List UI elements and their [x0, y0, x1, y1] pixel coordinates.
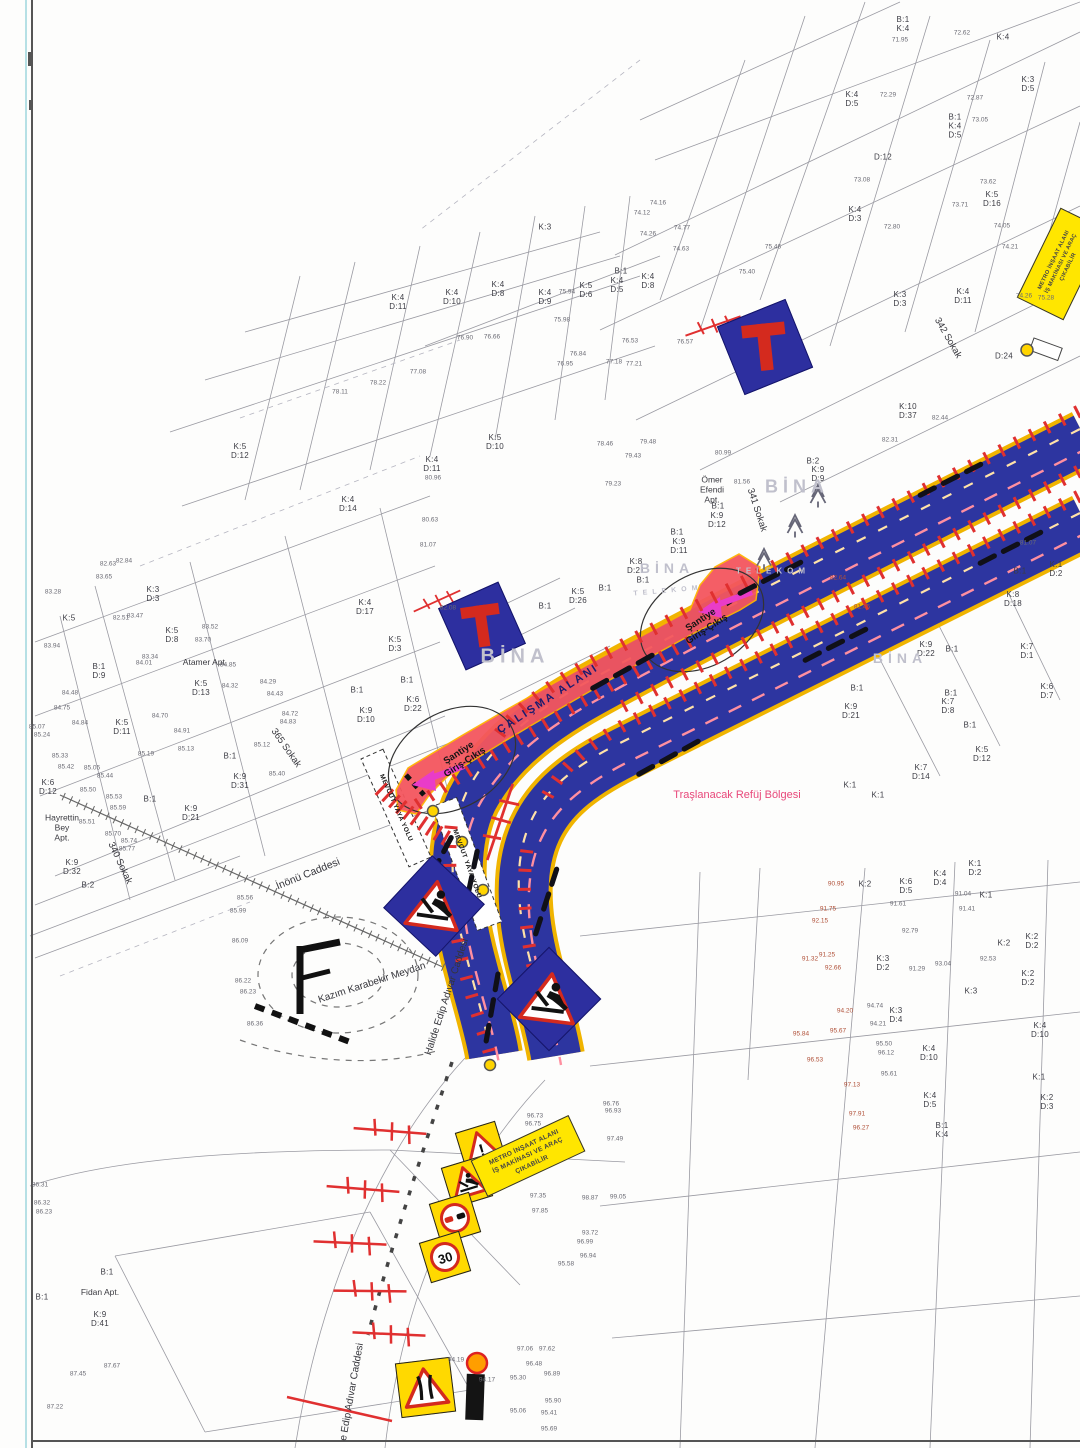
elevation-label: 91.04 [955, 891, 971, 898]
elevation-label: 73.71 [952, 202, 968, 209]
elevation-label: 73.08 [854, 177, 870, 184]
elevation-label: 97.85 [532, 1208, 548, 1215]
apt-hayrettin-bey: Hayrettin Bey Apt. [45, 813, 79, 844]
parcel-label: K:7 D:8 [941, 698, 954, 716]
elevation-label: 83.28 [45, 589, 61, 596]
parcel-label: K:2 D:3 [1040, 1094, 1053, 1112]
apt-omer-efendi: Ömer Efendi Apt. [700, 475, 724, 506]
elevation-label: 87.22 [47, 1404, 63, 1411]
watermark-bina-2: BİNA [765, 477, 829, 498]
elevation-label: 96.73 [527, 1113, 543, 1120]
elevation-label: 94.74 [867, 1003, 883, 1010]
parcel-label: K:3 D:3 [146, 586, 159, 604]
parcel-label: B:1 K:4 D:5 [948, 114, 961, 141]
elevation-label: 85.74 [121, 838, 137, 845]
parcel-label: B:1 [36, 1294, 49, 1303]
elevation-label: 94.17 [479, 1377, 495, 1384]
elevation-label: 76.57 [677, 339, 693, 346]
parcel-label: K:10 D:37 [899, 403, 917, 421]
parcel-label: K:5 D:6 [579, 282, 592, 300]
elevation-label: 96.12 [878, 1050, 894, 1057]
elevation-label: 78.22 [370, 380, 386, 387]
parcel-label: K:3 D:2 [876, 955, 889, 973]
elevation-label: 72.62 [954, 30, 970, 37]
parcel-label: K:3 [965, 988, 978, 997]
elevation-label: 91.25 [819, 952, 835, 959]
elevation-label: 96.93 [605, 1108, 621, 1115]
apt-fidan: Fidan Apt. [81, 1287, 119, 1297]
parcel-label: K:4 [997, 34, 1010, 43]
parcel-label: B:1 K:4 [936, 1122, 949, 1140]
elevation-label: 84.48 [62, 690, 78, 697]
parcel-label: K:2 [998, 940, 1011, 949]
elevation-label: 84.91 [174, 728, 190, 735]
parcel-label: B:1 [224, 753, 237, 762]
elevation-label: 95.30 [510, 1375, 526, 1382]
elevation-label: 76.66 [484, 334, 500, 341]
watermark-bina-1: BİNA [481, 646, 550, 669]
elevation-label: 94.21 [870, 1021, 886, 1028]
elevation-label: 85.42 [58, 764, 74, 771]
elevation-label: 92.15 [812, 918, 828, 925]
traffic-plan-map: ! 30 METRO İNŞAAT ALANI İŞ MAKİNASI VE [0, 0, 1080, 1448]
elevation-label: 98.87 [582, 1195, 598, 1202]
elevation-label: 71.95 [892, 37, 908, 44]
elevation-label: 86.23 [240, 989, 256, 996]
elevation-label: 84.72 [282, 711, 298, 718]
elevation-label: 77.08 [410, 369, 426, 376]
elevation-label: 85.07 [29, 724, 45, 731]
elevation-label: 93.04 [935, 961, 951, 968]
elevation-label: 78.46 [597, 441, 613, 448]
parcel-label: K:4 D:11 [389, 294, 407, 312]
street-halide-edip-adivar-2: e Edip Adıvar Caddesi [338, 1342, 366, 1441]
elevation-label: 80.96 [425, 475, 441, 482]
elevation-label: 85.24 [34, 732, 50, 739]
parcel-label: K:2 D:2 [1025, 933, 1038, 951]
elevation-label: 85.33 [52, 753, 68, 760]
elevation-label: 91.32 [802, 956, 818, 963]
elevation-label: 91.29 [909, 966, 925, 973]
elevation-label: 95.84 [793, 1031, 809, 1038]
elevation-label: 84.70 [152, 713, 168, 720]
parcel-label: K:2 [859, 881, 872, 890]
elevation-label: 84.43 [267, 691, 283, 698]
watermark-telekom-2: TELEKOM [633, 584, 703, 597]
label-site-access-east: Şantiye Giriş-Çıkış [678, 603, 730, 648]
parcel-label: K:3 D:4 [889, 1007, 902, 1025]
elevation-label: 77.21 [626, 361, 642, 368]
elevation-label: 72.87 [967, 95, 983, 102]
parcel-label: K:4 D:4 [933, 870, 946, 888]
parcel-label: K:3 D:5 [1021, 76, 1034, 94]
elevation-label: 85.13 [178, 746, 194, 753]
parcel-label: B:2 [82, 882, 95, 891]
elevation-label: 83.94 [44, 643, 60, 650]
elevation-label: 81.07 [1020, 540, 1036, 547]
elevation-label: 97.49 [607, 1136, 623, 1143]
elevation-label: 85.40 [269, 771, 285, 778]
elevation-label: 75.40 [739, 269, 755, 276]
elevation-label: 96.27 [853, 1125, 869, 1132]
parcel-label: K:9 D:11 [670, 538, 688, 556]
label-ped-path-2: MEVCUT YAYA YOLU [451, 829, 483, 900]
elevation-label: 84.32 [222, 683, 238, 690]
elevation-label: 81.07 [420, 542, 436, 549]
parcel-label: K:4 D:8 [641, 273, 654, 291]
parcel-label: K:1 D:2 [968, 860, 981, 878]
elevation-label: 97.91 [849, 1111, 865, 1118]
watermark-telekom-1: TELEKOM [736, 567, 810, 576]
elevation-label: 95.69 [541, 1426, 557, 1433]
watermark-bina-3: BİNA [640, 560, 694, 576]
elevation-label: 92.66 [825, 965, 841, 972]
elevation-label: 79.48 [640, 439, 656, 446]
parcel-label: K:5 D:12 [973, 746, 991, 764]
elevation-label: 74.05 [994, 223, 1010, 230]
parcel-label: K:4 D:11 [423, 456, 441, 474]
elevation-label: 72.80 [884, 224, 900, 231]
elevation-label: 86.09 [232, 938, 248, 945]
elevation-label: 96.89 [544, 1371, 560, 1378]
street-halide-edip-adivar-1: Halide Edip Adıvar Caddesi [423, 937, 471, 1056]
elevation-label: 86.31 [32, 1182, 48, 1189]
parcel-label: K:9 D:21 [842, 703, 860, 721]
parcel-label: K:4 D:3 [848, 206, 861, 224]
elevation-label: 95.61 [881, 1071, 897, 1078]
elevation-label: 92.53 [980, 956, 996, 963]
parcel-label: K:4 D:17 [356, 599, 374, 617]
parcel-label: K:4 D:10 [1031, 1022, 1049, 1040]
parcel-label: K:5 D:12 [231, 443, 249, 461]
elevation-label: 83.65 [96, 574, 112, 581]
elevation-label: 79.23 [605, 481, 621, 488]
parcel-label: K:3 [539, 224, 552, 233]
elevation-label: 82.31 [882, 437, 898, 444]
street-inonu-caddesi: İnönü Caddesi [274, 856, 341, 892]
parcel-label: K:8 D:18 [1004, 591, 1022, 609]
elevation-label: 96.99 [577, 1239, 593, 1246]
elevation-label: 85.44 [97, 773, 113, 780]
parcel-label: K:9 D:12 [708, 512, 726, 530]
parcel-label: B:1 [851, 685, 864, 694]
elevation-label: 95.58 [558, 1261, 574, 1268]
elevation-label: 75.98 [554, 317, 570, 324]
elevation-label: 85.70 [105, 831, 121, 838]
elevation-label: 87.45 [70, 1371, 86, 1378]
elevation-label: 75.28 [1038, 295, 1054, 302]
parcel-label: K:5 D:26 [569, 588, 587, 606]
elevation-label: 73.62 [980, 179, 996, 186]
elevation-label: 97.62 [539, 1346, 555, 1353]
parcel-label: B:1 [964, 722, 977, 731]
elevation-label: 91.41 [959, 906, 975, 913]
elevation-label: 84.29 [260, 679, 276, 686]
elevation-label: 81.45 [854, 604, 870, 611]
elevation-label: 93.72 [582, 1230, 598, 1237]
parcel-label: K:4 D:10 [920, 1045, 938, 1063]
parcel-label: K:5 D:8 [165, 627, 178, 645]
parcel-label: K:6 D:5 [899, 878, 912, 896]
parcel-label: K:5 D:10 [486, 434, 504, 452]
elevation-label: 74.26 [1016, 293, 1032, 300]
parcel-label: B:1 [946, 646, 959, 655]
elevation-label: 82.84 [116, 558, 132, 565]
elevation-label: 85.51 [79, 819, 95, 826]
parcel-label: K:5 D:3 [388, 636, 401, 654]
elevation-label: 95.90 [545, 1398, 561, 1405]
elevation-label: 95.50 [876, 1041, 892, 1048]
parcel-label: K:9 D:41 [91, 1311, 109, 1329]
elevation-label: 96.76 [603, 1101, 619, 1108]
parcel-label: K:7 D:1 [1020, 643, 1033, 661]
parcel-label: K:1 [1033, 1074, 1046, 1083]
parcel-label: K:6 D:7 [1040, 683, 1053, 701]
note-median-shaving: Traşlanacak Refüj Bölgesi [673, 789, 800, 801]
elevation-label: 74.12 [634, 210, 650, 217]
parcel-label: K:1 [872, 792, 885, 801]
elevation-label: 78.11 [332, 389, 348, 396]
elevation-label: 91.75 [820, 906, 836, 913]
elevation-label: 94.19 [448, 1357, 464, 1364]
elevation-label: 96.48 [526, 1361, 542, 1368]
elevation-label: 94.20 [837, 1008, 853, 1015]
parcel-label: K:5 D:13 [192, 680, 210, 698]
parcel-label: K:9 D:10 [357, 707, 375, 725]
parcel-label: K:9 D:32 [63, 859, 81, 877]
parcel-label: B:1 D:9 [92, 663, 105, 681]
parcel-label: B:1 [351, 687, 364, 696]
elevation-label: 96.75 [525, 1121, 541, 1128]
elevation-label: 95.41 [541, 1410, 557, 1417]
elevation-label: 80.63 [422, 517, 438, 524]
elevation-label: 84.83 [280, 719, 296, 726]
elevation-label: 95.06 [510, 1408, 526, 1415]
parcel-label: K:6 D:12 [39, 779, 57, 797]
parcel-label: K:4 D:5 [923, 1092, 936, 1110]
parcel-label: K:5 D:11 [113, 719, 131, 737]
elevation-label: 97.35 [530, 1193, 546, 1200]
elevation-label: 75.46 [765, 244, 781, 251]
parcel-label: B:1 [101, 1269, 114, 1278]
elevation-label: 90.95 [828, 881, 844, 888]
parcel-label: B:1 [144, 796, 157, 805]
label-work-area: ÇALIŞMA ALANI [495, 662, 601, 737]
parcel-label: B:1 [1014, 568, 1027, 577]
parcel-label: K:6 D:22 [404, 696, 422, 714]
elevation-label: 99.05 [610, 1194, 626, 1201]
elevation-label: 77.18 [606, 359, 622, 366]
parcel-label: B:1 [615, 268, 628, 277]
elevation-label: 75.94 [559, 289, 575, 296]
elevation-label: 91.61 [890, 901, 906, 908]
street-342-sokak: 342 Sokak [932, 316, 964, 360]
parcel-label: K:7 D:14 [912, 764, 930, 782]
elevation-label: 86.36 [247, 1021, 263, 1028]
elevation-label: 82.63 [100, 561, 116, 568]
elevation-label: 83.70 [195, 637, 211, 644]
street-365-sokak: 365 Sokak [269, 726, 304, 769]
elevation-label: 74.16 [650, 200, 666, 207]
watermark-bina-4: BİNA [873, 650, 927, 666]
elevation-label: 84.01 [136, 660, 152, 667]
parcel-label: K:1 [844, 782, 857, 791]
elevation-label: 86.22 [235, 978, 251, 985]
elevation-label: 83.47 [127, 613, 143, 620]
parcel-label: D:12 [874, 154, 892, 163]
parcel-label: K:9 D:31 [231, 773, 249, 791]
elevation-label: 84.84 [72, 720, 88, 727]
parcel-label: K:4 D:11 [954, 288, 972, 306]
elevation-label: 85.59 [110, 805, 126, 812]
elevation-label: 82.51 [113, 615, 129, 622]
elevation-label: 81.56 [734, 479, 750, 486]
parcel-label: B:1 [599, 585, 612, 594]
elevation-label: 74.63 [673, 246, 689, 253]
elevation-label: 83.52 [202, 624, 218, 631]
elevation-label: 85.77 [119, 846, 135, 853]
elevation-label: 92.79 [902, 928, 918, 935]
elevation-label: 86.23 [36, 1209, 52, 1216]
elevation-label: 84.75 [54, 705, 70, 712]
elevation-label: 85.19 [138, 751, 154, 758]
street-kazim-karabekir-meydan: Kazım Karabekir Meydan [317, 960, 427, 1005]
parcel-label: K:4 D:14 [339, 496, 357, 514]
elevation-label: 76.53 [622, 338, 638, 345]
map-labels: K:4 D:11K:4 D:10K:4 D:8K:4 D:9K:5 D:6K:4… [0, 0, 1080, 1448]
label-site-access-west: Şantiye Giriş-Çıkış [436, 736, 488, 781]
elevation-label: 73.05 [972, 117, 988, 124]
elevation-label: 82.08 [440, 605, 456, 612]
elevation-label: 72.29 [880, 92, 896, 99]
elevation-label: 86.32 [34, 1200, 50, 1207]
elevation-label: 85.05 [84, 765, 100, 772]
elevation-label: 85.50 [80, 787, 96, 794]
elevation-label: 97.13 [844, 1082, 860, 1089]
parcel-label: D:24 [995, 353, 1013, 362]
elevation-label: 79.43 [625, 453, 641, 460]
elevation-label: 74.26 [640, 231, 656, 238]
parcel-label: K:1 [980, 892, 993, 901]
elevation-label: 95.67 [830, 1028, 846, 1035]
parcel-label: K:4 D:10 [443, 289, 461, 307]
elevation-label: 76.95 [557, 361, 573, 368]
elevation-label: 85.56 [237, 895, 253, 902]
parcel-label: K:1 D:2 [1049, 561, 1062, 579]
parcel-label: K:4 D:9 [538, 289, 551, 307]
elevation-label: 97.06 [517, 1346, 533, 1353]
parcel-label: K:2 D:2 [1021, 970, 1034, 988]
elevation-label: 80.99 [715, 450, 731, 457]
parcel-label: K:4 D:5 [610, 277, 623, 295]
elevation-label: 76.90 [457, 335, 473, 342]
elevation-label: 96.94 [580, 1253, 596, 1260]
parcel-label: B:1 [401, 677, 414, 686]
parcel-label: K:5 D:16 [983, 191, 1001, 209]
parcel-label: K:5 [63, 615, 76, 624]
parcel-label: K:4 D:8 [491, 281, 504, 299]
elevation-label: 85.53 [106, 794, 122, 801]
parcel-label: K:3 D:3 [893, 291, 906, 309]
elevation-label: 76.84 [570, 351, 586, 358]
label-ped-path-1: MEVCUT YAYA YOLU [378, 773, 414, 842]
elevation-label: 85.12 [254, 742, 270, 749]
parcel-label: K:9 D:21 [182, 805, 200, 823]
parcel-label: B:1 K:4 [897, 16, 910, 34]
elevation-label: 74.21 [1002, 244, 1018, 251]
elevation-label: 96.53 [807, 1057, 823, 1064]
parcel-label: K:4 D:5 [845, 91, 858, 109]
elevation-label: 82.64 [830, 575, 846, 582]
elevation-label: 82.44 [932, 415, 948, 422]
elevation-label: 74.77 [674, 225, 690, 232]
parcel-label: B:1 [539, 603, 552, 612]
elevation-label: 87.67 [104, 1363, 120, 1370]
apt-atamer: Atamer Apt. [183, 657, 227, 667]
parcel-label: B:1 [637, 577, 650, 586]
elevation-label: 85.99 [230, 908, 246, 915]
